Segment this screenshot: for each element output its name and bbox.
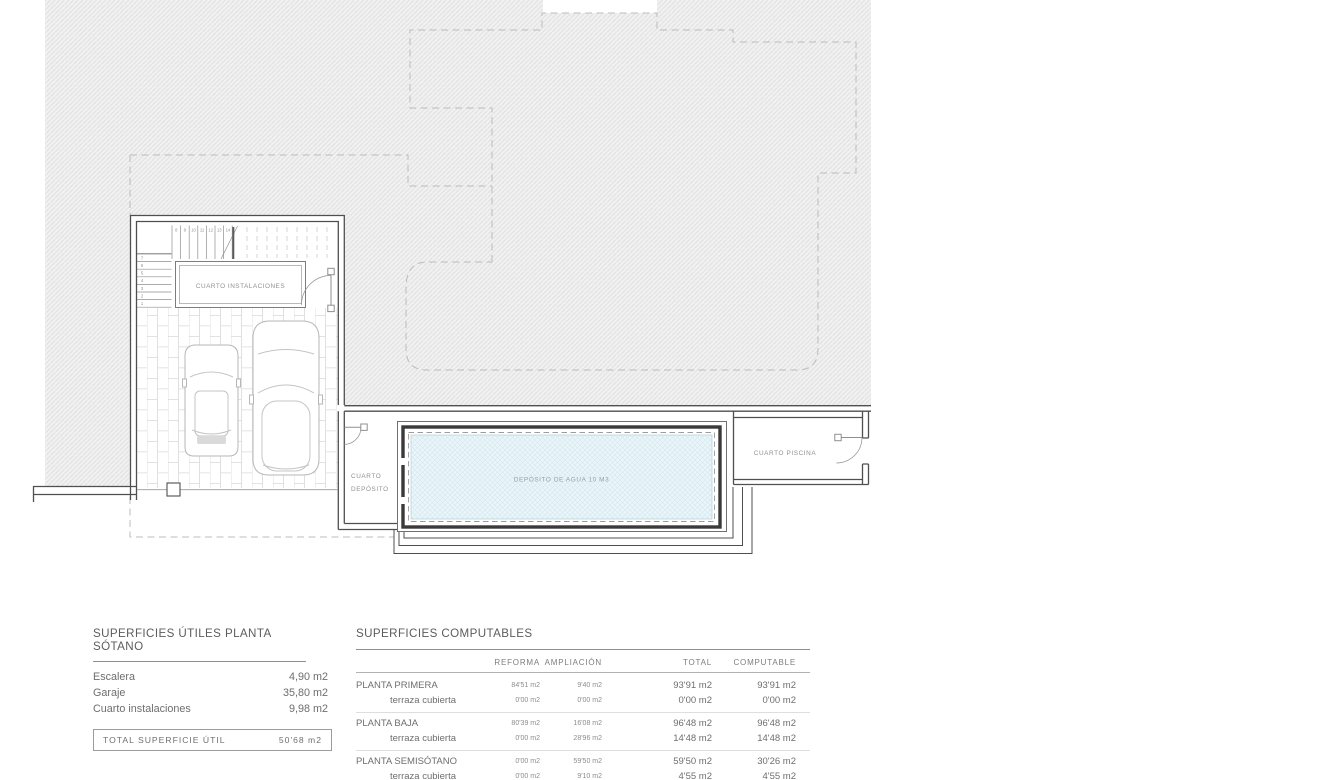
column-header-computable: COMPUTABLE xyxy=(712,658,796,667)
water-deposit-label: DEPÓSITO DE AGUA 10 M3 xyxy=(514,475,609,484)
computable-table-header: REFORMA AMPLIACIÓN TOTAL COMPUTABLE xyxy=(356,650,810,673)
row-label: terraza cubierta xyxy=(356,732,478,747)
cell-total: 14'48 m2 xyxy=(602,732,712,747)
row-value: 35,80 m2 xyxy=(283,686,328,702)
stair-number: 3 xyxy=(141,286,144,291)
deposit-room-label-line2: DEPÓSITO xyxy=(351,484,389,493)
cell-ampliacion: 0'00 m2 xyxy=(540,694,602,709)
cell-computable: 96'48 m2 xyxy=(712,717,796,732)
cell-computable: 30'26 m2 xyxy=(712,755,796,770)
computable-surfaces-title: SUPERFICIES COMPUTABLES xyxy=(356,627,810,650)
stair-number: 6 xyxy=(141,263,144,268)
cell-ampliacion: 16'08 m2 xyxy=(540,717,602,732)
stair-number: 7 xyxy=(141,256,144,261)
floor-plan: 8 9 10 11 12 13 14 7 6 5 4 3 2 1 CUARTO … xyxy=(0,0,1324,600)
cell-ampliacion: 28'96 m2 xyxy=(540,732,602,747)
pool-room-door xyxy=(835,434,862,463)
useful-surfaces-title: SUPERFICIES ÚTILES PLANTA SÓTANO xyxy=(93,627,306,662)
deposit-room-walls xyxy=(338,411,397,529)
cell-total: 4'55 m2 xyxy=(602,770,712,780)
row-label: PLANTA SEMISÓTANO xyxy=(356,755,478,770)
table-row: PLANTA PRIMERA 84'51 m2 9'40 m2 93'91 m2… xyxy=(356,679,810,694)
useful-surfaces-rows: Escalera 4,90 m2 Garaje 35,80 m2 Cuarto … xyxy=(93,670,328,717)
stair-treads-dashed-upper-flight xyxy=(247,227,327,258)
row-label: PLANTA PRIMERA xyxy=(356,679,478,694)
table-row: Garaje 35,80 m2 xyxy=(93,686,328,702)
installations-room-label: CUARTO INSTALACIONES xyxy=(196,283,285,290)
pool-room-walls xyxy=(734,411,869,484)
installations-room: CUARTO INSTALACIONES xyxy=(176,262,306,308)
row-value: 9,98 m2 xyxy=(289,702,328,718)
corridor-top-wall xyxy=(344,406,871,412)
total-value: 50'68 m2 xyxy=(279,735,322,745)
total-surface-box: TOTAL SUPERFICIE ÚTIL 50'68 m2 xyxy=(93,729,332,751)
cell-reforma: 0'00 m2 xyxy=(478,770,540,780)
stair-number: 13 xyxy=(217,228,222,233)
total-label: TOTAL SUPERFICIE ÚTIL xyxy=(103,735,226,745)
cell-ampliacion: 9'10 m2 xyxy=(540,770,602,780)
architectural-plan-page: 8 9 10 11 12 13 14 7 6 5 4 3 2 1 CUARTO … xyxy=(0,0,1324,780)
cell-reforma: 84'51 m2 xyxy=(478,679,540,694)
installations-door xyxy=(302,268,335,311)
stair-number: 1 xyxy=(141,301,144,306)
stair-number: 5 xyxy=(141,271,144,276)
stair-number: 14 xyxy=(226,228,231,233)
row-label: terraza cubierta xyxy=(356,770,478,780)
table-row: terraza cubierta 0'00 m2 0'00 m2 0'00 m2… xyxy=(356,694,810,709)
cell-total: 59'50 m2 xyxy=(602,755,712,770)
table-row: terraza cubierta 0'00 m2 28'96 m2 14'48 … xyxy=(356,732,810,747)
cell-ampliacion: 59'50 m2 xyxy=(540,755,602,770)
pool-room-label: CUARTO PISCINA xyxy=(754,450,817,457)
cell-computable: 4'55 m2 xyxy=(712,770,796,780)
row-label: Escalera xyxy=(93,670,135,686)
row-label: Cuarto instalaciones xyxy=(93,702,191,718)
column-header-total: TOTAL xyxy=(602,658,712,667)
row-label: terraza cubierta xyxy=(356,694,478,709)
stair-number: 4 xyxy=(141,278,144,283)
row-value: 4,90 m2 xyxy=(289,670,328,686)
stair-number: 10 xyxy=(191,228,196,233)
table-row: terraza cubierta 0'00 m2 9'10 m2 4'55 m2… xyxy=(356,770,810,780)
garage-column xyxy=(167,483,180,496)
cell-ampliacion: 9'40 m2 xyxy=(540,679,602,694)
stair-number: 12 xyxy=(208,228,213,233)
stair-number: 11 xyxy=(200,228,205,233)
cell-computable: 0'00 m2 xyxy=(712,694,796,709)
stair-number: 9 xyxy=(184,228,187,233)
computable-table-body: PLANTA PRIMERA 84'51 m2 9'40 m2 93'91 m2… xyxy=(356,679,810,780)
car-left xyxy=(183,345,241,456)
table-row: PLANTA SEMISÓTANO 0'00 m2 59'50 m2 59'50… xyxy=(356,750,810,770)
cell-computable: 93'91 m2 xyxy=(712,679,796,694)
column-header-ampliacion: AMPLIACIÓN xyxy=(540,658,602,667)
cell-reforma: 80'39 m2 xyxy=(478,717,540,732)
deposit-room-door xyxy=(344,424,367,444)
cell-reforma: 0'00 m2 xyxy=(478,732,540,747)
cell-computable: 14'48 m2 xyxy=(712,732,796,747)
cell-reforma: 0'00 m2 xyxy=(478,694,540,709)
exterior-wall-stub xyxy=(33,487,137,503)
table-row: Escalera 4,90 m2 xyxy=(93,670,328,686)
cell-total: 96'48 m2 xyxy=(602,717,712,732)
table-row: PLANTA BAJA 80'39 m2 16'08 m2 96'48 m2 9… xyxy=(356,712,810,732)
header-spacer xyxy=(356,658,478,667)
deposit-room-label-line1: CUARTO xyxy=(351,473,381,480)
cell-total: 0'00 m2 xyxy=(602,694,712,709)
stair-number: 2 xyxy=(141,293,144,298)
row-label: Garaje xyxy=(93,686,125,702)
cell-total: 93'91 m2 xyxy=(602,679,712,694)
column-header-reforma: REFORMA xyxy=(478,658,540,667)
water-deposit: DEPÓSITO DE AGUA 10 M3 xyxy=(398,422,727,532)
car-right xyxy=(250,321,323,475)
table-row: Cuarto instalaciones 9,98 m2 xyxy=(93,702,328,718)
cell-reforma: 0'00 m2 xyxy=(478,755,540,770)
computable-surfaces-table: SUPERFICIES COMPUTABLES REFORMA AMPLIACI… xyxy=(356,627,810,780)
row-label: PLANTA BAJA xyxy=(356,717,478,732)
useful-surfaces-table: SUPERFICIES ÚTILES PLANTA SÓTANO Escaler… xyxy=(93,627,332,751)
stair-number: 8 xyxy=(175,228,178,233)
